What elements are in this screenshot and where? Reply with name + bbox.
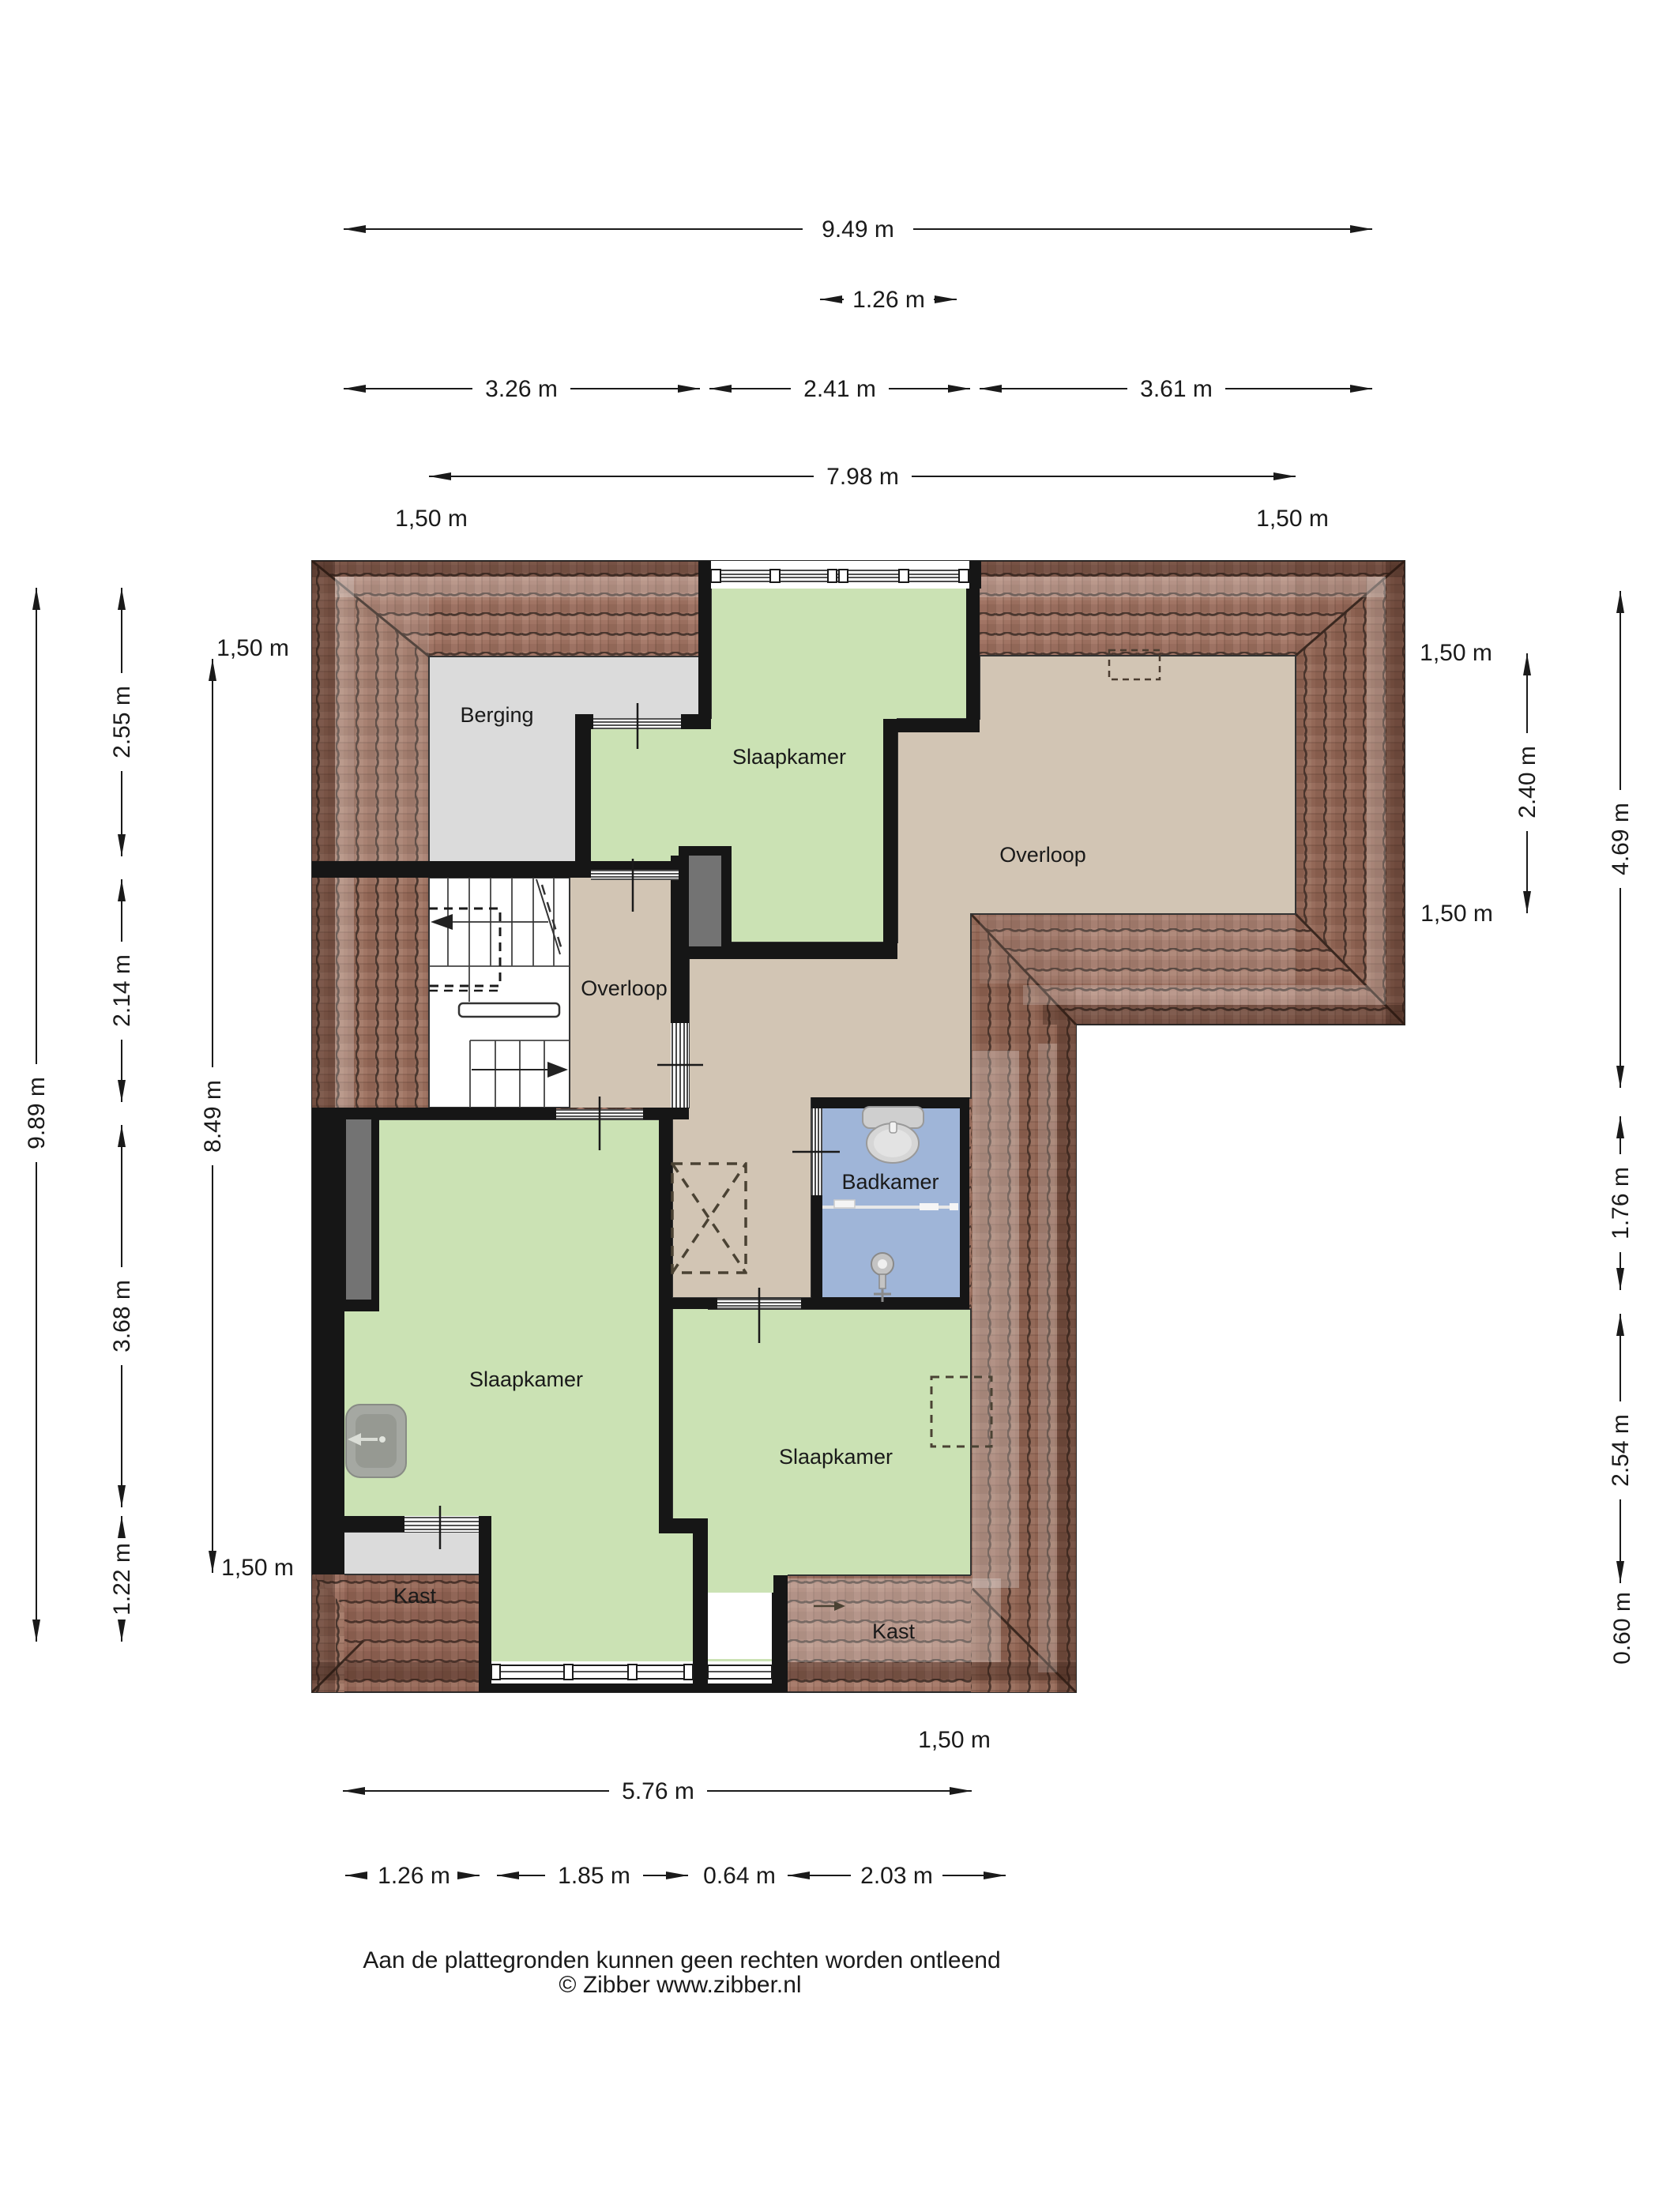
svg-text:9.89 m: 9.89 m [24, 1077, 50, 1149]
svg-text:1.26 m: 1.26 m [852, 287, 925, 313]
svg-text:Kast: Kast [872, 1619, 916, 1643]
svg-text:7.98 m: 7.98 m [826, 464, 899, 490]
svg-text:Overloop: Overloop [999, 843, 1086, 867]
svg-text:1.22 m: 1.22 m [109, 1543, 135, 1616]
svg-text:Badkamer: Badkamer [841, 1170, 939, 1194]
svg-text:1.76 m: 1.76 m [1608, 1167, 1634, 1240]
svg-text:3.68 m: 3.68 m [109, 1280, 135, 1352]
svg-text:1,50 m: 1,50 m [918, 1727, 991, 1753]
svg-text:1,50 m: 1,50 m [1256, 506, 1329, 532]
svg-text:3.61 m: 3.61 m [1140, 376, 1213, 402]
svg-text:Slaapkamer: Slaapkamer [732, 745, 846, 769]
svg-text:0.64 m: 0.64 m [703, 1863, 776, 1889]
svg-text:4.69 m: 4.69 m [1608, 803, 1634, 875]
svg-text:Aan de plattegronden kunnen ge: Aan de plattegronden kunnen geen rechten… [363, 1947, 1000, 1973]
svg-text:Kast: Kast [393, 1584, 437, 1608]
svg-text:1,50 m: 1,50 m [221, 1555, 294, 1581]
svg-text:2.14 m: 2.14 m [109, 954, 135, 1027]
svg-text:Overloop: Overloop [581, 976, 668, 1000]
svg-text:Slaapkamer: Slaapkamer [469, 1367, 583, 1391]
svg-text:1.26 m: 1.26 m [378, 1863, 450, 1889]
svg-text:2.54 m: 2.54 m [1608, 1414, 1634, 1487]
svg-text:Berging: Berging [460, 703, 533, 727]
svg-text:Slaapkamer: Slaapkamer [779, 1445, 893, 1469]
svg-text:8.49 m: 8.49 m [200, 1080, 226, 1153]
svg-text:1,50 m: 1,50 m [1420, 901, 1493, 927]
svg-text:1,50 m: 1,50 m [395, 506, 468, 532]
svg-text:2.55 m: 2.55 m [109, 686, 135, 758]
svg-text:5.76 m: 5.76 m [622, 1778, 694, 1804]
svg-text:2.03 m: 2.03 m [860, 1863, 933, 1889]
svg-text:2.41 m: 2.41 m [803, 376, 876, 402]
svg-text:1,50 m: 1,50 m [1420, 640, 1492, 666]
svg-text:1,50 m: 1,50 m [216, 635, 289, 661]
svg-text:0.60 m: 0.60 m [1609, 1592, 1635, 1665]
svg-text:© Zibber www.zibber.nl: © Zibber www.zibber.nl [559, 1972, 801, 1998]
svg-text:1.85 m: 1.85 m [558, 1863, 630, 1889]
svg-text:2.40 m: 2.40 m [1514, 746, 1540, 818]
svg-text:9.49 m: 9.49 m [822, 216, 894, 243]
svg-text:3.26 m: 3.26 m [485, 376, 558, 402]
